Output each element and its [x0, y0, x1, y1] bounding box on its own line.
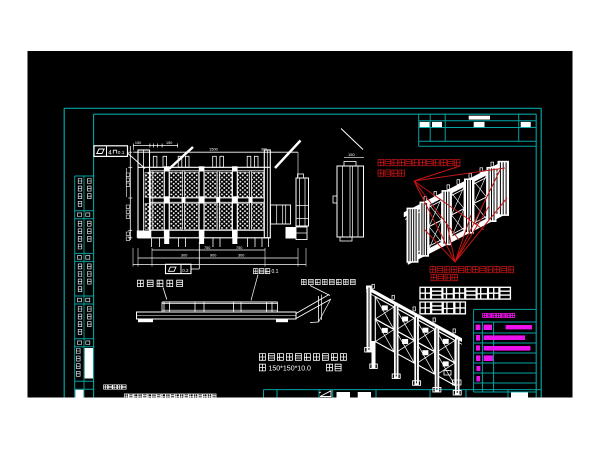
svg-text:300: 300: [181, 254, 187, 258]
svg-text:0.1: 0.1: [272, 269, 279, 275]
svg-text:0.2: 0.2: [182, 268, 189, 273]
svg-text:4: 4: [108, 150, 112, 157]
svg-text:150: 150: [166, 141, 172, 145]
svg-text:900: 900: [210, 254, 216, 258]
svg-text:150*150*10.0: 150*150*10.0: [269, 366, 312, 373]
svg-text:150: 150: [135, 141, 141, 145]
svg-text:150: 150: [348, 152, 355, 157]
svg-text:750: 750: [236, 246, 242, 250]
svg-text:300: 300: [238, 254, 244, 258]
svg-text:0.1: 0.1: [118, 150, 125, 156]
svg-text:750: 750: [204, 246, 210, 250]
svg-text:1500: 1500: [209, 147, 219, 152]
